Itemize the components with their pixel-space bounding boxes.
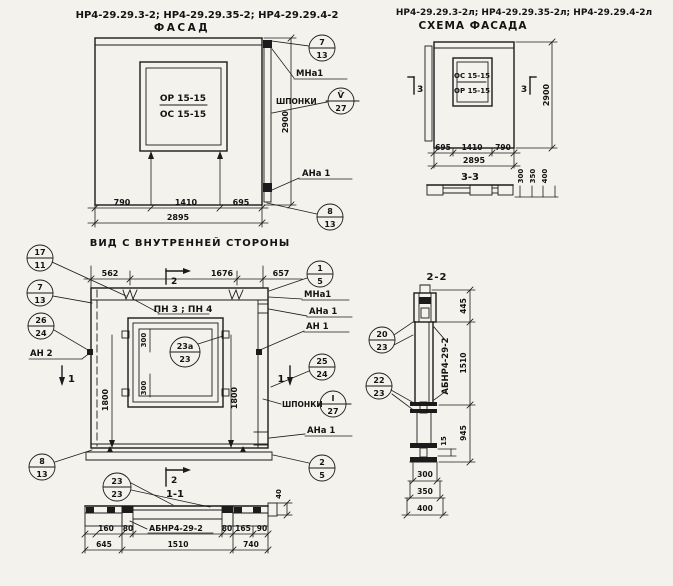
dim-label: 300	[140, 333, 148, 348]
callout-20-23: 20 23	[369, 322, 413, 353]
dim-label: 80	[123, 524, 133, 533]
svg-text:27: 27	[327, 407, 338, 416]
svg-text:1: 1	[278, 374, 285, 385]
svg-text:24: 24	[35, 329, 47, 338]
dim-label: 90	[257, 524, 267, 533]
scheme-title: СХЕМА ФАСАДА	[418, 20, 527, 32]
svg-text:2: 2	[319, 458, 325, 467]
svg-text:ШПОНКИ: ШПОНКИ	[282, 400, 323, 409]
facade-title: ФАСАД	[154, 22, 210, 34]
svg-text:МНа1: МНа1	[304, 290, 331, 300]
profile-dims: 300 350 400	[515, 169, 558, 197]
svg-text:23: 23	[376, 343, 387, 352]
svg-text:АН 1: АН 1	[306, 322, 329, 332]
dim-label: 1510	[168, 540, 189, 549]
label-abnr: АБНР4-29-2	[434, 327, 451, 400]
section-mark-3-left: 3	[408, 77, 423, 95]
window-mark-bottom: ОС 15-15	[160, 110, 206, 120]
section-3-3-profile	[427, 185, 513, 195]
section-2-2: 2-2 445 1510 945 15 АБНР4-29-2	[366, 272, 475, 518]
bottom-dims: 300 350 400	[402, 463, 448, 518]
svg-text:ПН 3 ; ПН 4: ПН 3 ; ПН 4	[154, 305, 213, 315]
callout-23a-23: 23а 23	[170, 336, 223, 367]
svg-text:Ѷ: Ѷ	[338, 90, 345, 100]
svg-text:350: 350	[529, 169, 537, 184]
section-1-1: 1-1 23 23 40 160 8	[82, 473, 292, 553]
dim-label: 2900	[542, 83, 551, 106]
svg-text:7: 7	[37, 283, 43, 292]
svg-text:8: 8	[39, 457, 45, 466]
svg-text:400: 400	[541, 169, 549, 184]
svg-text:1: 1	[68, 374, 75, 385]
svg-text:25: 25	[316, 357, 328, 366]
svg-text:350: 350	[417, 487, 433, 496]
svg-text:23: 23	[111, 477, 122, 486]
svg-text:АБНР4-29-2: АБНР4-29-2	[441, 337, 451, 394]
drawing-canvas: НР4-29.29.3-2; НР4-29.29.35-2; НР4-29.29…	[0, 0, 673, 586]
svg-text:7: 7	[319, 38, 325, 47]
svg-text:13: 13	[324, 220, 335, 229]
label-mna1: МНа1	[272, 49, 347, 79]
label-pn: ПН 3 ; ПН 4	[133, 299, 212, 315]
scheme-codes: НР4-29.29.3-2л; НР4-29.29.35-2л; НР4-29.…	[396, 8, 652, 18]
window-mark-top: ОС 15-15	[454, 72, 490, 80]
callout-23-23: 23 23	[103, 473, 210, 507]
facade-view: НР4-29.29.3-2; НР4-29.29.35-2; НР4-29.29…	[76, 10, 359, 230]
hook	[420, 285, 430, 293]
label-an2: АН 2	[29, 349, 93, 359]
svg-text:11: 11	[34, 261, 46, 270]
svg-text:23: 23	[373, 389, 384, 398]
section-mark-2-top: 2	[166, 268, 191, 287]
label-ana1-top: АНа 1	[269, 307, 352, 317]
svg-text:23: 23	[179, 355, 190, 364]
dim-label: 160	[98, 524, 114, 533]
svg-text:3: 3	[417, 85, 423, 95]
label-ana1: АНа 1	[272, 169, 352, 190]
dim-label: 1410	[462, 143, 483, 152]
svg-text:АНа 1: АНа 1	[302, 169, 330, 179]
svg-text:300: 300	[517, 169, 525, 184]
dim-label: 695	[435, 143, 451, 152]
svg-text:АНа 1: АНа 1	[309, 307, 337, 317]
svg-text:АН 2: АН 2	[30, 349, 53, 359]
svg-text:2: 2	[171, 476, 177, 486]
svg-text:МНа1: МНа1	[296, 69, 323, 79]
dim-label: 1510	[459, 353, 468, 374]
svg-text:27: 27	[335, 104, 346, 113]
window-mark-top: ОР 15-15	[160, 94, 206, 104]
svg-text:13: 13	[316, 51, 327, 60]
callout-7-13: 7 13	[272, 35, 335, 61]
label-an1: АН 1	[256, 322, 349, 355]
window-opening	[140, 62, 227, 151]
svg-text:300: 300	[417, 470, 433, 479]
svg-text:13: 13	[36, 470, 47, 479]
dim-label: 562	[102, 269, 119, 278]
dim-label: 300	[140, 381, 148, 396]
callout-22-23: 22 23	[366, 373, 416, 412]
window-mark-bottom: ОР 15-15	[454, 87, 490, 95]
label-ana1-bottom: АНа 1	[269, 426, 352, 438]
svg-text:24: 24	[316, 370, 328, 379]
dim-label: 740	[243, 540, 259, 549]
svg-text:АБНР4-29-2: АБНР4-29-2	[149, 524, 203, 533]
dim-label: 790	[114, 198, 131, 207]
dim-label: 1800	[230, 386, 239, 409]
label-shponki: ШПОНКИ I 27	[263, 391, 351, 417]
section-mark-2-bottom: 2	[166, 467, 191, 486]
dim-label: 445	[459, 298, 468, 314]
callout-7-13: 7 13	[27, 280, 92, 306]
dim-label: 695	[233, 198, 250, 207]
dim-label: 945	[459, 425, 468, 441]
svg-text:5: 5	[317, 277, 323, 286]
dim-label: 645	[96, 540, 112, 549]
svg-text:1: 1	[317, 264, 323, 273]
scheme-view: НР4-29.29.3-2л; НР4-29.29.35-2л; НР4-29.…	[396, 8, 652, 197]
callout-8-13: 8 13	[29, 450, 92, 480]
label-mna1: МНа1	[269, 290, 349, 300]
dim-label: 2895	[167, 213, 190, 222]
svg-text:АНа 1: АНа 1	[307, 426, 335, 436]
svg-text:5: 5	[319, 471, 325, 480]
svg-text:26: 26	[35, 316, 47, 325]
edge-rib	[264, 41, 271, 202]
dim-label: 40	[275, 489, 283, 499]
svg-text:17: 17	[34, 248, 45, 257]
label-shponki: ШПОНКИ Ѷ 27	[272, 88, 359, 114]
dim-label: 657	[273, 269, 290, 278]
section-2-2-title: 2-2	[426, 272, 447, 283]
inner-view: ВИД С ВНУТРЕННЕЙ СТОРОНЫ 562 1676 657 2	[27, 236, 352, 486]
dim-label: 80	[222, 524, 232, 533]
section-mark-3-right: 3	[521, 77, 536, 95]
dim-label: 790	[495, 143, 511, 152]
facade-codes: НР4-29.29.3-2; НР4-29.29.35-2; НР4-29.29…	[76, 10, 339, 21]
callout-8-13: 8 13	[267, 203, 343, 230]
dim-label: 1410	[175, 198, 198, 207]
dim-label: 165	[235, 524, 251, 533]
inner-title: ВИД С ВНУТРЕННЕЙ СТОРОНЫ	[90, 236, 291, 249]
svg-text:400: 400	[417, 504, 433, 513]
svg-text:I: I	[332, 394, 335, 403]
svg-text:2: 2	[171, 277, 177, 287]
drawing-sheet: НР4-29.29.3-2; НР4-29.29.35-2; НР4-29.29…	[0, 0, 673, 586]
svg-text:20: 20	[376, 330, 388, 339]
dim-label: 2895	[463, 156, 486, 165]
dim-label: 1800	[101, 388, 110, 411]
svg-text:23: 23	[111, 490, 122, 499]
section-3-3-title: 3-3	[461, 172, 479, 183]
key-mark	[229, 290, 243, 299]
dim-label: 2900	[281, 110, 290, 133]
callout-2-5: 2 5	[273, 455, 335, 481]
svg-text:ШПОНКИ: ШПОНКИ	[276, 97, 317, 106]
section-mark-1-left: 1	[59, 366, 75, 386]
svg-text:8: 8	[327, 207, 333, 216]
callout-26-24: 26 24	[28, 313, 88, 350]
dim-label: 1676	[211, 269, 234, 278]
dim-label: 15	[440, 436, 448, 446]
svg-text:23а: 23а	[177, 342, 194, 351]
svg-text:22: 22	[373, 376, 384, 385]
svg-text:3: 3	[521, 85, 527, 95]
label-abnr: АБНР4-29-2	[130, 521, 213, 533]
svg-text:13: 13	[34, 296, 45, 305]
key-mark	[123, 290, 137, 299]
